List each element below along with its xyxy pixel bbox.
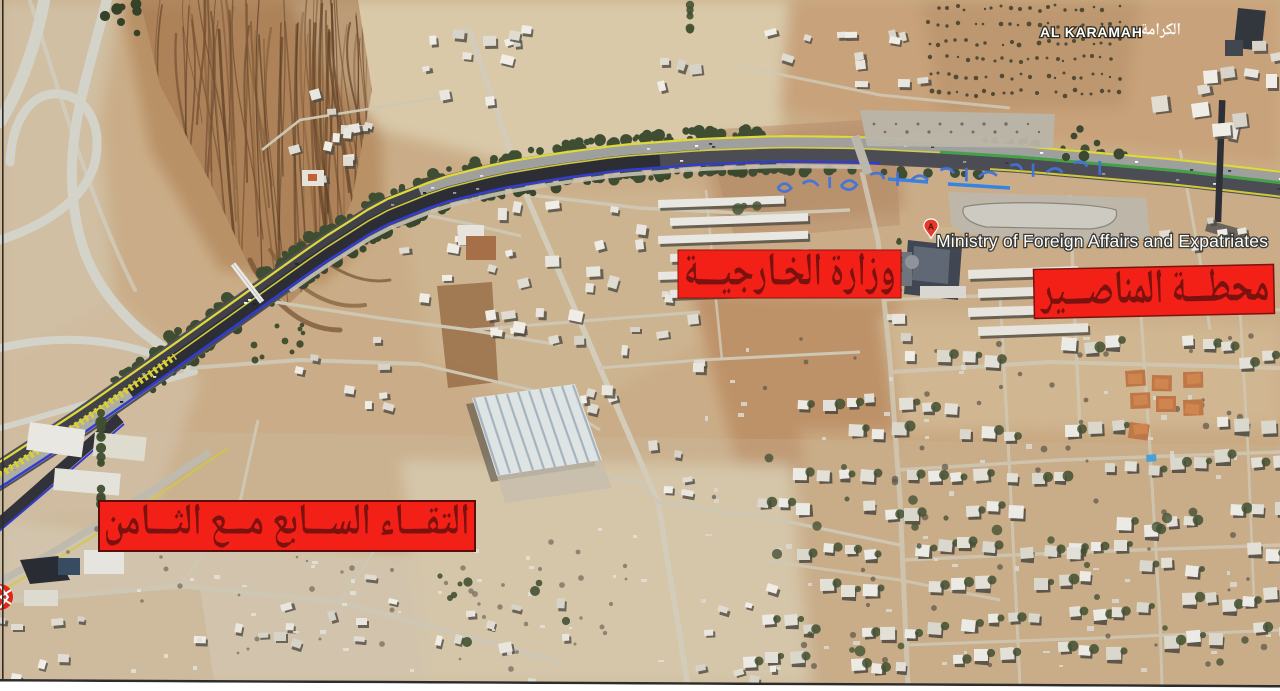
- svg-text:A: A: [928, 222, 934, 232]
- svg-text:AL KARAMAH: AL KARAMAH: [1040, 24, 1143, 40]
- svg-text:Ministry of Foreign Affairs an: Ministry of Foreign Affairs and Expatria…: [936, 231, 1268, 251]
